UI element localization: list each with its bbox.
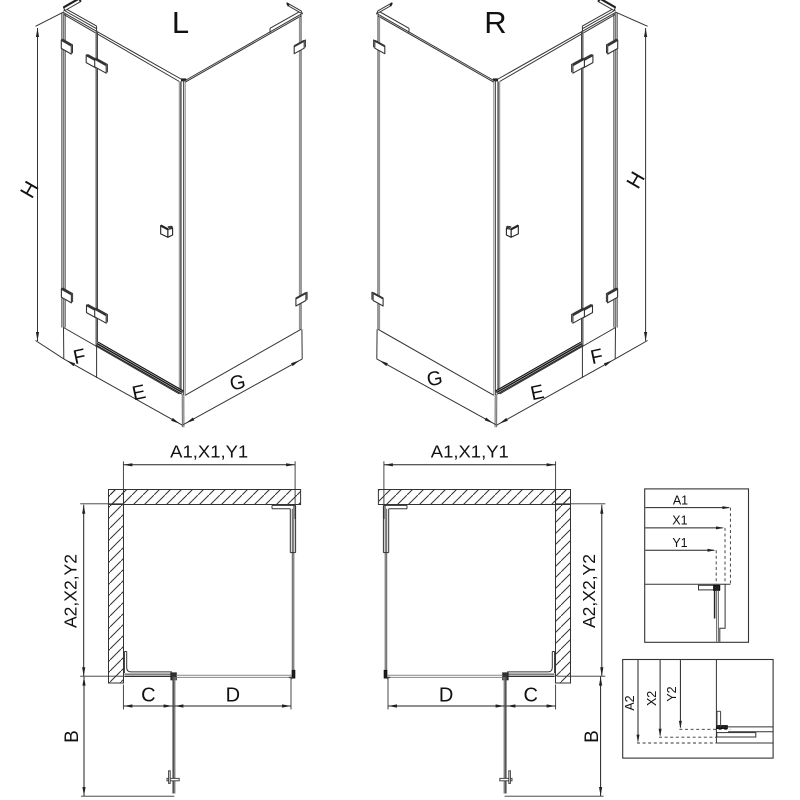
svg-text:C: C bbox=[523, 685, 537, 707]
svg-text:B: B bbox=[582, 730, 603, 743]
svg-text:Y2: Y2 bbox=[665, 686, 679, 701]
svg-text:R: R bbox=[484, 5, 506, 40]
svg-text:D: D bbox=[226, 685, 240, 707]
svg-text:A1,X1,Y1: A1,X1,Y1 bbox=[431, 442, 509, 462]
svg-text:A2,X2,Y2: A2,X2,Y2 bbox=[579, 554, 599, 628]
svg-text:Y1: Y1 bbox=[672, 536, 687, 550]
svg-text:B: B bbox=[62, 730, 83, 743]
svg-text:A1: A1 bbox=[673, 493, 688, 507]
svg-text:C: C bbox=[141, 685, 155, 707]
svg-text:A1,X1,Y1: A1,X1,Y1 bbox=[170, 442, 248, 462]
svg-text:X2: X2 bbox=[645, 691, 659, 706]
svg-text:A2: A2 bbox=[623, 695, 637, 710]
svg-text:L: L bbox=[172, 5, 189, 40]
svg-text:X1: X1 bbox=[672, 514, 687, 528]
svg-text:D: D bbox=[439, 685, 453, 707]
svg-text:A2,X2,Y2: A2,X2,Y2 bbox=[61, 554, 81, 628]
